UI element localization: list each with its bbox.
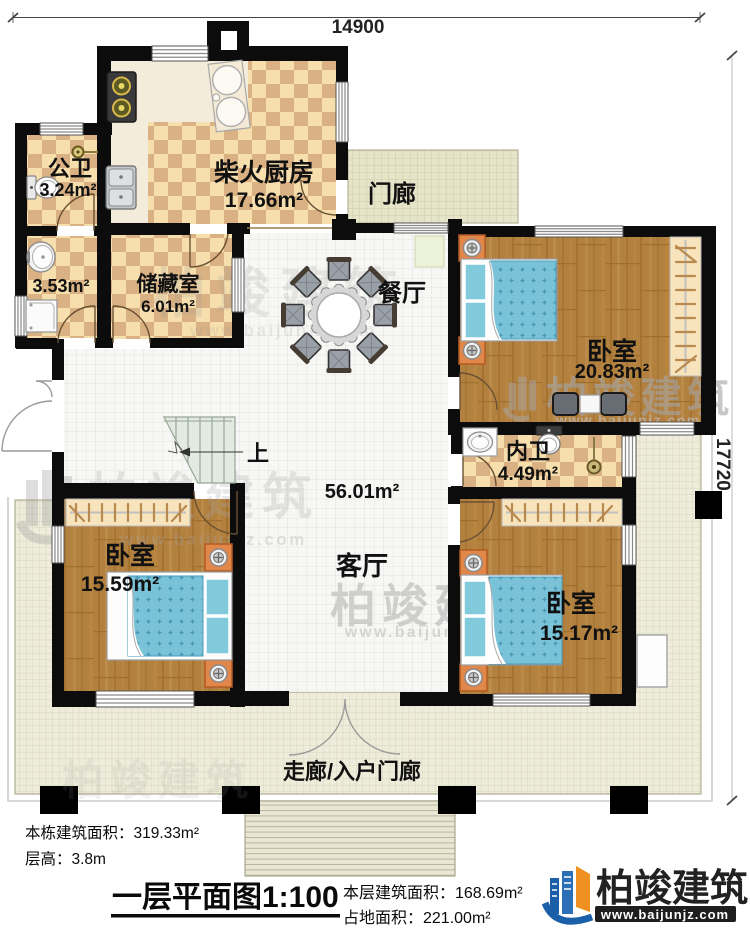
svg-text:卧室: 卧室 bbox=[546, 589, 596, 618]
svg-text:www.baijunjz.com: www.baijunjz.com bbox=[600, 907, 729, 922]
svg-text:14900: 14900 bbox=[332, 17, 385, 38]
svg-text:客厅: 客厅 bbox=[336, 551, 388, 581]
svg-text:一层平面图1:100: 一层平面图1:100 bbox=[112, 881, 339, 914]
svg-text:柏竣建筑: 柏竣建筑 bbox=[62, 757, 254, 804]
svg-text:15.59m²: 15.59m² bbox=[81, 573, 159, 596]
svg-text:占地面积：221.00m²: 占地面积：221.00m² bbox=[343, 909, 491, 927]
svg-text:本栋建筑面积：319.33m²: 本栋建筑面积：319.33m² bbox=[25, 824, 199, 842]
svg-text:层高：3.8m: 层高：3.8m bbox=[25, 850, 106, 868]
svg-text:门廊: 门廊 bbox=[368, 180, 416, 208]
svg-text:6.01m²: 6.01m² bbox=[141, 297, 195, 316]
svg-text:20.83m²: 20.83m² bbox=[575, 361, 650, 383]
svg-text:56.01m²: 56.01m² bbox=[325, 481, 400, 503]
svg-text:公卫: 公卫 bbox=[48, 156, 92, 181]
svg-text:3.24m²: 3.24m² bbox=[39, 180, 96, 200]
svg-text:17.66m²: 17.66m² bbox=[225, 189, 303, 212]
svg-text:本层建筑面积：168.69m²: 本层建筑面积：168.69m² bbox=[343, 884, 523, 902]
svg-text:柏竣建筑: 柏竣建筑 bbox=[596, 868, 748, 910]
svg-text:餐厅: 餐厅 bbox=[378, 280, 426, 307]
svg-text:3.53m²: 3.53m² bbox=[32, 276, 89, 296]
svg-text:17720: 17720 bbox=[712, 438, 733, 491]
svg-text:卧室: 卧室 bbox=[105, 541, 155, 570]
svg-text:上: 上 bbox=[247, 441, 269, 466]
svg-text:15.17m²: 15.17m² bbox=[540, 622, 618, 645]
svg-text:储藏室: 储藏室 bbox=[137, 272, 200, 296]
svg-text:内卫: 内卫 bbox=[506, 439, 550, 464]
svg-text:柴火厨房: 柴火厨房 bbox=[214, 158, 314, 187]
svg-text:4.49m²: 4.49m² bbox=[498, 464, 558, 485]
svg-text:走廊/入户门廊: 走廊/入户门廊 bbox=[283, 759, 421, 784]
